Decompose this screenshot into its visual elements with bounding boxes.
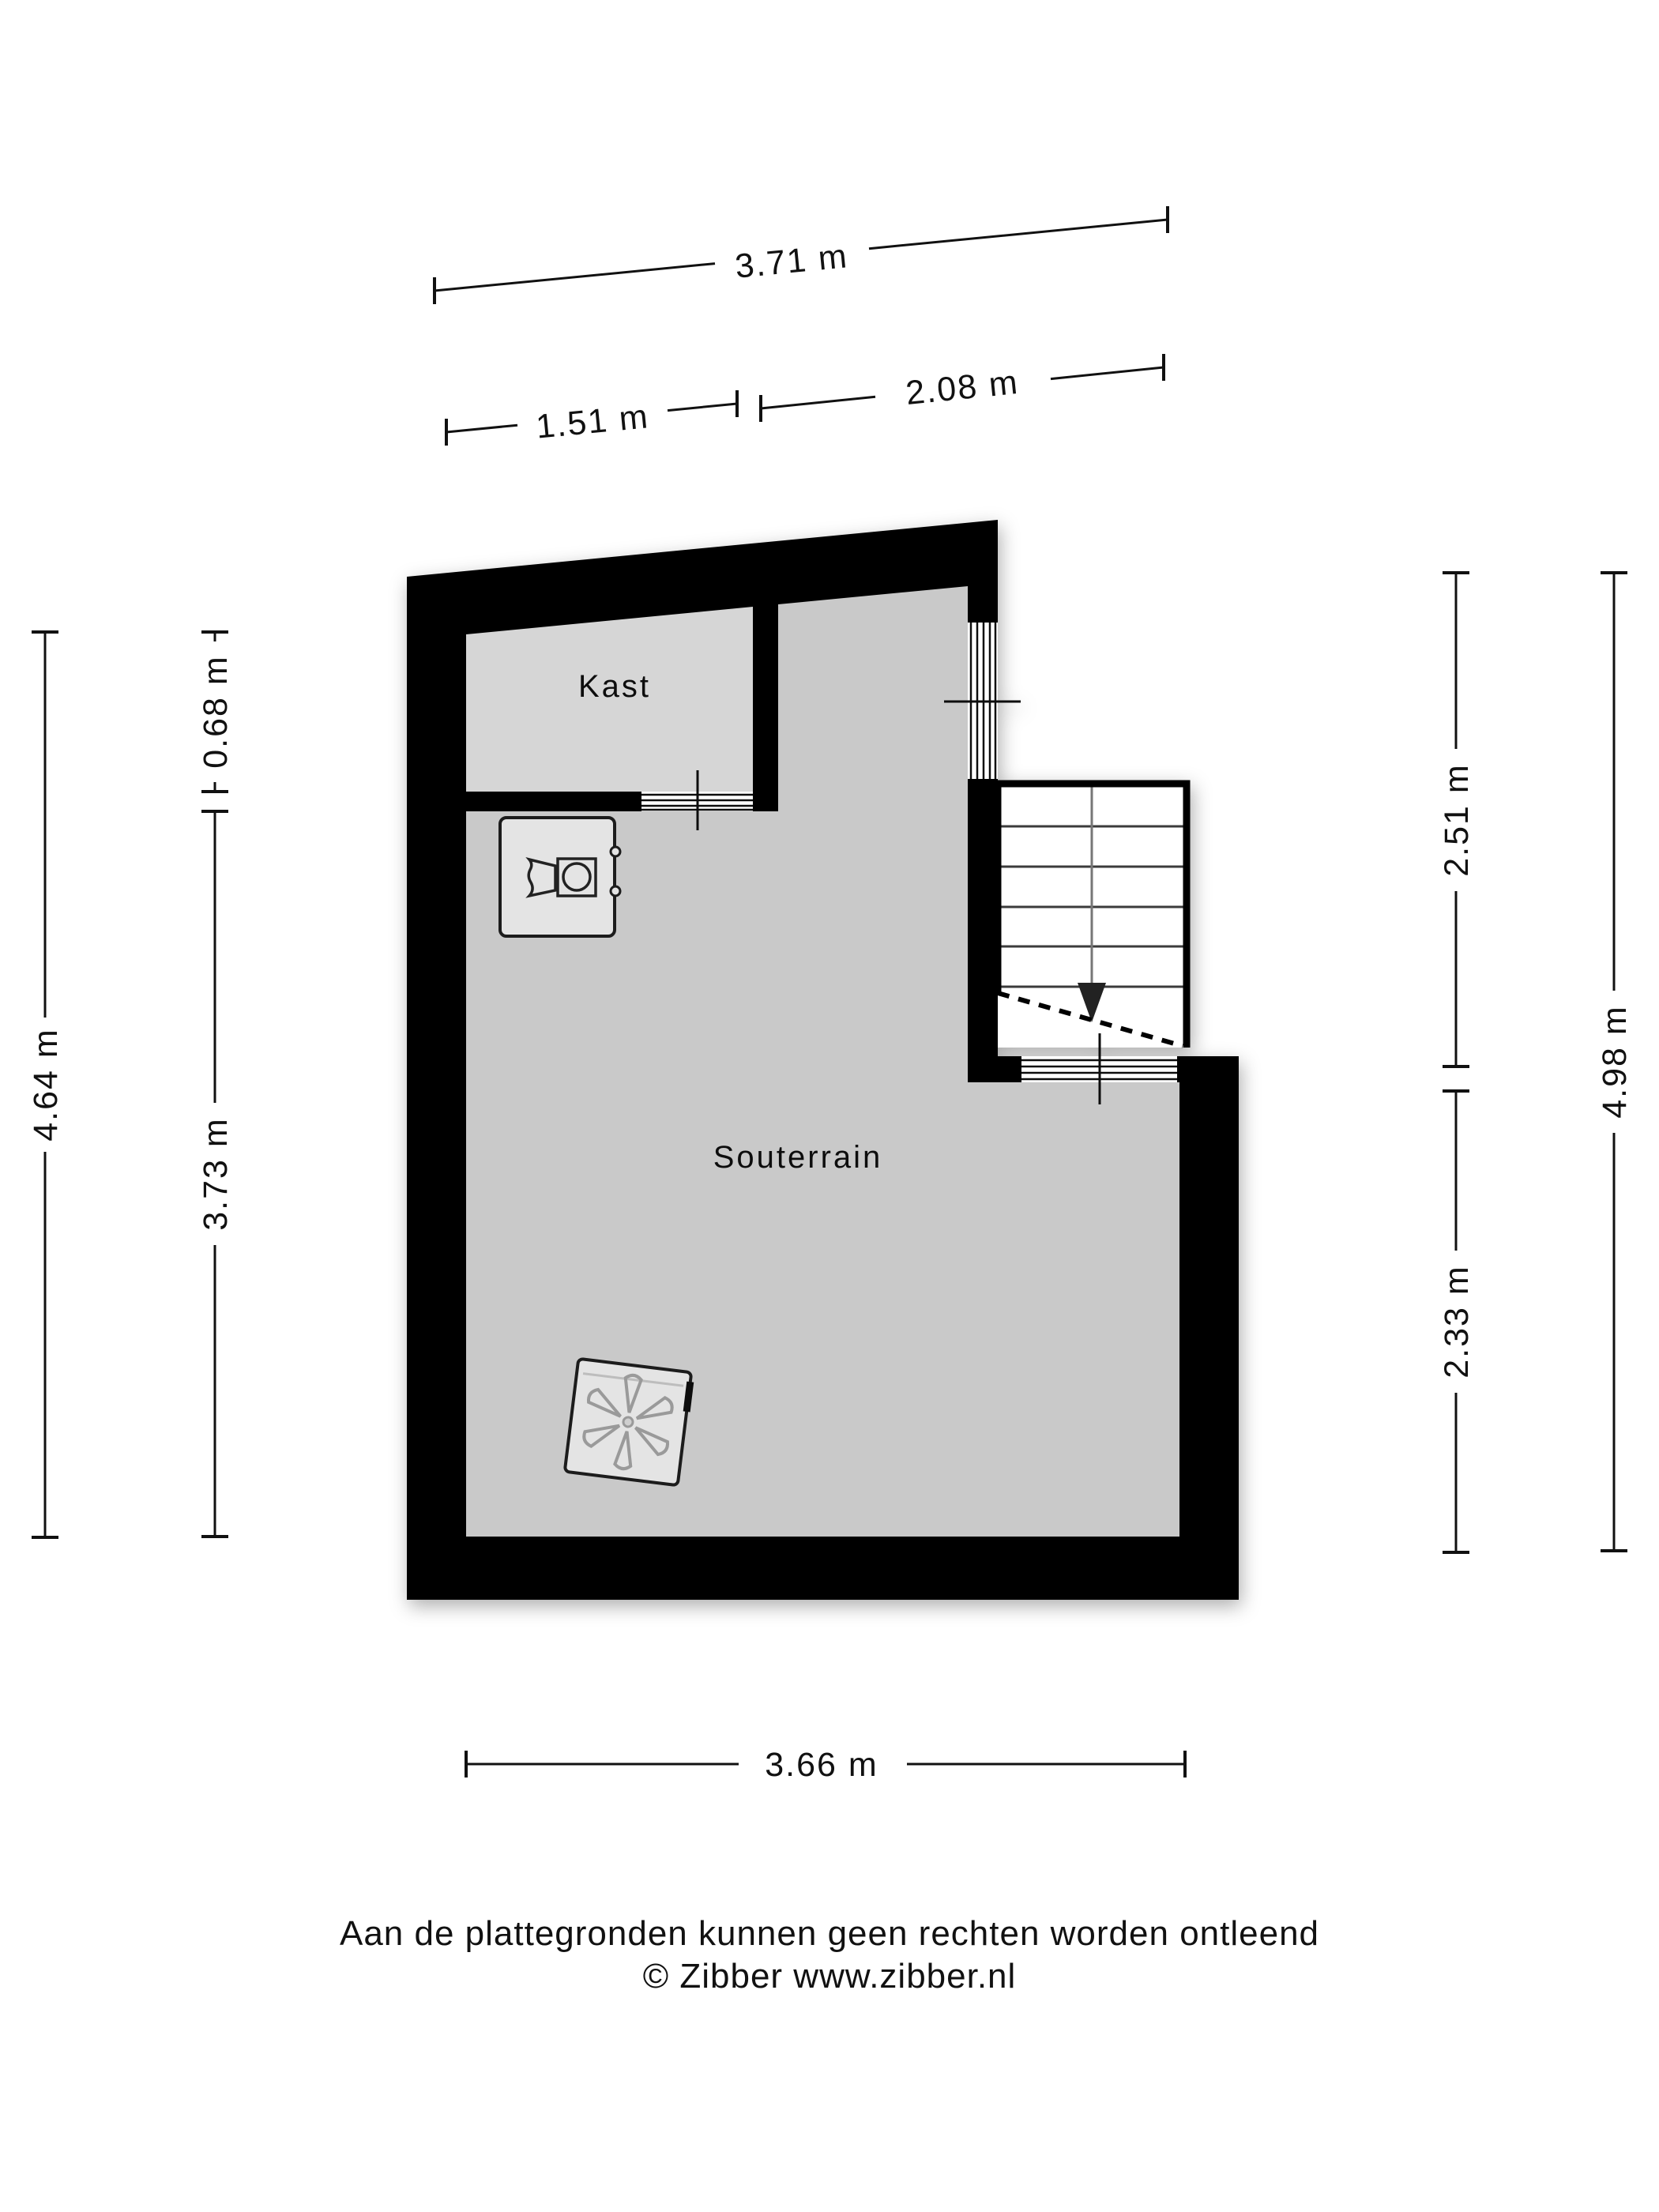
dimension-right-outer: 4.98 m	[1596, 573, 1634, 1551]
dimension-label-left-kast: 0.68 m	[197, 655, 235, 768]
dimension-label-right-upper: 2.51 m	[1438, 763, 1476, 876]
dimension-label-bottom: 3.66 m	[765, 1746, 878, 1784]
dimension-label-left-outer: 4.64 m	[27, 1028, 65, 1141]
dimension-top-full: 3.71 m	[434, 206, 1168, 304]
ventilation-fan-icon	[565, 1359, 691, 1485]
kast-right-wall	[753, 603, 778, 811]
dimension-label-top-full: 3.71 m	[733, 237, 849, 286]
building: Kast Souterrain	[407, 520, 1239, 1600]
dimension-top-right: 2.08 m	[761, 354, 1164, 422]
floorplan-page: 3.71 m 1.51 m 2.08 m 4.64 m 0.68 m 3.73 …	[0, 0, 1659, 2212]
dimension-right-upper: 2.51 m	[1438, 573, 1476, 1066]
kast-bottom-wall	[466, 792, 641, 811]
room-label-kast: Kast	[578, 669, 651, 704]
dimension-label-right-outer: 4.98 m	[1596, 1005, 1634, 1118]
dimension-label-top-left: 1.51 m	[534, 397, 650, 446]
dimension-right-lower: 2.33 m	[1438, 1091, 1476, 1552]
dimension-top-left: 1.51 m	[446, 390, 737, 446]
room-label-souterrain: Souterrain	[713, 1140, 883, 1175]
footer-disclaimer: Aan de plattegronden kunnen geen rechten…	[340, 1914, 1319, 1953]
dimension-label-top-right: 2.08 m	[904, 363, 1021, 412]
dimension-label-left-room: 3.73 m	[197, 1117, 235, 1230]
dimension-left-outer: 4.64 m	[27, 632, 65, 1537]
staircase	[998, 784, 1187, 1048]
dimension-label-right-lower: 2.33 m	[1438, 1265, 1476, 1378]
dimension-left-kast: 0.68 m	[197, 632, 235, 792]
floorplan-canvas: 3.71 m 1.51 m 2.08 m 4.64 m 0.68 m 3.73 …	[0, 0, 1659, 2212]
footer-copyright: © Zibber www.zibber.nl	[643, 1957, 1017, 1996]
dimension-bottom: 3.66 m	[466, 1746, 1185, 1784]
dimension-left-room: 3.73 m	[197, 811, 235, 1537]
washing-machine-icon	[500, 818, 620, 936]
